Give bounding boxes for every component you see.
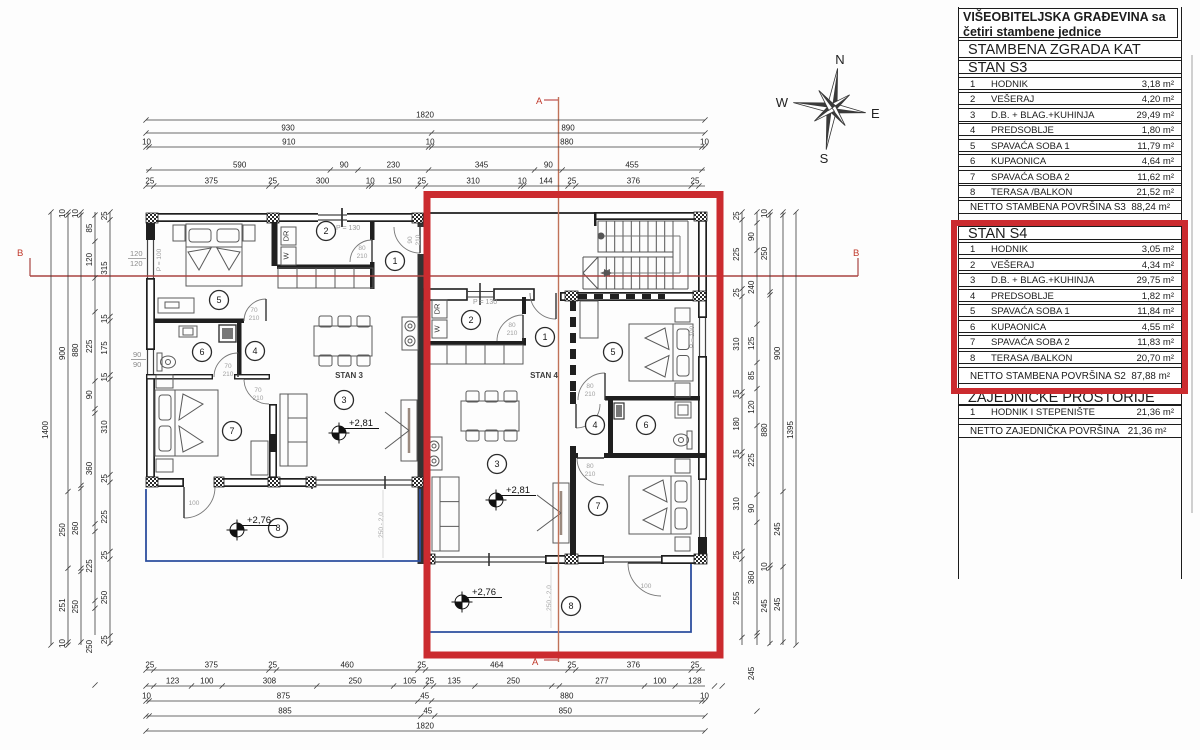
svg-text:25: 25 (145, 661, 154, 670)
svg-text:10: 10 (760, 562, 769, 571)
svg-text:B: B (17, 248, 23, 259)
svg-text:25: 25 (100, 550, 109, 559)
svg-text:15: 15 (732, 449, 741, 458)
svg-text:90: 90 (407, 236, 414, 244)
svg-text:W: W (282, 252, 291, 260)
svg-text:90: 90 (340, 161, 349, 170)
svg-text:5: 5 (216, 295, 221, 305)
svg-text:250: 250 (760, 246, 769, 260)
svg-text:25: 25 (268, 177, 277, 186)
svg-text:7: 7 (595, 501, 600, 511)
svg-text:45: 45 (423, 707, 432, 716)
svg-text:885: 885 (278, 707, 292, 716)
svg-text:210: 210 (223, 371, 234, 378)
svg-text:310: 310 (732, 497, 741, 511)
svg-text:135: 135 (448, 677, 462, 686)
svg-text:225: 225 (100, 510, 109, 524)
svg-text:80: 80 (586, 383, 594, 390)
svg-text:210: 210 (357, 253, 368, 260)
svg-text:277: 277 (595, 677, 609, 686)
svg-text:25: 25 (567, 177, 576, 186)
svg-text:245: 245 (773, 522, 782, 536)
svg-text:25: 25 (268, 661, 277, 670)
svg-text:S: S (820, 151, 829, 166)
svg-text:90: 90 (85, 390, 94, 399)
svg-text:90: 90 (544, 161, 553, 170)
svg-text:100: 100 (189, 500, 200, 507)
svg-text:120: 120 (85, 252, 94, 266)
svg-text:15: 15 (100, 314, 109, 323)
svg-text:175: 175 (100, 341, 109, 355)
svg-text:8: 8 (275, 523, 280, 533)
svg-text:+2,81: +2,81 (349, 418, 373, 429)
svg-text:10: 10 (366, 177, 375, 186)
svg-text:210: 210 (585, 391, 596, 398)
svg-text:225: 225 (85, 339, 94, 353)
svg-text:360: 360 (85, 461, 94, 475)
svg-text:120: 120 (130, 259, 143, 268)
svg-text:125: 125 (747, 336, 756, 350)
svg-text:15: 15 (732, 389, 741, 398)
svg-text:120: 120 (747, 400, 756, 414)
svg-text:+2,81: +2,81 (506, 485, 530, 496)
svg-text:85: 85 (85, 223, 94, 232)
svg-text:210: 210 (253, 395, 264, 402)
svg-text:210: 210 (249, 315, 260, 322)
svg-text:P = 130: P = 130 (473, 299, 497, 306)
svg-text:A: A (532, 657, 539, 668)
svg-text:1400: 1400 (41, 421, 50, 439)
svg-text:P = 100: P = 100 (689, 325, 696, 348)
svg-text:225: 225 (732, 247, 741, 261)
svg-text:123: 123 (166, 677, 180, 686)
svg-text:310: 310 (466, 177, 480, 186)
svg-text:100: 100 (653, 677, 667, 686)
svg-text:80: 80 (358, 245, 366, 252)
svg-text:A: A (536, 96, 543, 107)
svg-text:25: 25 (417, 661, 426, 670)
svg-text:590: 590 (233, 161, 247, 170)
svg-text:6: 6 (643, 420, 648, 430)
svg-text:376: 376 (627, 661, 641, 670)
svg-text:880: 880 (760, 423, 769, 437)
svg-text:225: 225 (747, 453, 756, 467)
svg-text:DR: DR (282, 230, 291, 241)
svg-text:DR: DR (433, 303, 442, 314)
svg-text:25: 25 (100, 473, 109, 482)
svg-text:7: 7 (229, 426, 234, 436)
svg-text:+2,76: +2,76 (472, 587, 496, 598)
svg-text:875: 875 (277, 692, 291, 701)
svg-text:25: 25 (691, 177, 700, 186)
svg-text:375: 375 (205, 177, 219, 186)
svg-text:80: 80 (586, 463, 594, 470)
svg-text:250 - 2,0: 250 - 2,0 (546, 585, 553, 611)
svg-text:128: 128 (688, 677, 702, 686)
svg-text:3: 3 (341, 395, 346, 405)
svg-text:245: 245 (747, 666, 756, 680)
svg-text:310: 310 (100, 420, 109, 434)
svg-text:10: 10 (700, 138, 709, 147)
svg-text:210: 210 (585, 471, 596, 478)
svg-text:10: 10 (426, 138, 435, 147)
svg-text:90: 90 (133, 360, 141, 369)
svg-text:1: 1 (392, 256, 397, 266)
svg-text:910: 910 (282, 138, 296, 147)
svg-text:210: 210 (415, 234, 422, 245)
svg-text:464: 464 (490, 661, 504, 670)
svg-text:308: 308 (263, 677, 277, 686)
svg-text:W: W (776, 95, 789, 110)
svg-text:N: N (835, 52, 844, 67)
svg-text:345: 345 (475, 161, 489, 170)
svg-text:240: 240 (747, 280, 756, 294)
svg-text:25: 25 (417, 177, 426, 186)
svg-text:880: 880 (71, 343, 80, 357)
svg-text:890: 890 (561, 124, 575, 133)
svg-text:10: 10 (760, 209, 769, 218)
svg-text:W: W (433, 325, 442, 333)
svg-text:376: 376 (627, 177, 641, 186)
svg-text:85: 85 (747, 371, 756, 380)
svg-text:250: 250 (71, 599, 80, 613)
svg-text:900: 900 (773, 346, 782, 360)
svg-text:70: 70 (250, 307, 258, 314)
svg-text:80: 80 (508, 322, 516, 329)
svg-text:4: 4 (252, 346, 257, 356)
svg-text:25: 25 (100, 211, 109, 220)
svg-text:245: 245 (760, 599, 769, 613)
svg-text:10: 10 (518, 177, 527, 186)
svg-text:260: 260 (71, 521, 80, 535)
svg-text:+2,76: +2,76 (247, 515, 271, 526)
svg-text:251: 251 (58, 598, 67, 612)
svg-text:100: 100 (200, 677, 214, 686)
svg-text:250: 250 (507, 677, 521, 686)
svg-text:STAN 4: STAN 4 (530, 371, 558, 380)
svg-text:3: 3 (494, 459, 499, 469)
svg-text:25: 25 (732, 288, 741, 297)
svg-text:455: 455 (625, 161, 639, 170)
svg-text:25: 25 (567, 661, 576, 670)
svg-text:25: 25 (425, 677, 434, 686)
svg-text:120: 120 (130, 249, 143, 258)
svg-text:180: 180 (732, 417, 741, 431)
svg-text:1820: 1820 (416, 111, 434, 120)
svg-text:930: 930 (281, 124, 295, 133)
svg-text:250: 250 (85, 639, 94, 653)
svg-text:1: 1 (542, 332, 547, 342)
svg-text:255: 255 (732, 591, 741, 605)
svg-text:245: 245 (773, 597, 782, 611)
svg-text:880: 880 (560, 138, 574, 147)
svg-text:4: 4 (592, 420, 597, 430)
svg-text:105: 105 (403, 677, 417, 686)
svg-text:90: 90 (747, 232, 756, 241)
svg-text:850: 850 (559, 707, 573, 716)
svg-text:E: E (871, 106, 880, 121)
svg-text:25: 25 (732, 211, 741, 220)
svg-text:360: 360 (747, 570, 756, 584)
svg-text:70: 70 (254, 387, 262, 394)
svg-text:150: 150 (388, 177, 402, 186)
svg-text:B: B (853, 248, 859, 259)
svg-text:225: 225 (85, 559, 94, 573)
svg-text:P = 100: P = 100 (156, 248, 163, 271)
svg-text:375: 375 (205, 661, 219, 670)
svg-text:900: 900 (58, 346, 67, 360)
svg-text:10: 10 (58, 209, 67, 218)
svg-text:90: 90 (747, 503, 756, 512)
svg-text:250: 250 (348, 677, 362, 686)
svg-text:10: 10 (142, 138, 151, 147)
svg-text:8: 8 (568, 601, 573, 611)
svg-text:10: 10 (700, 692, 709, 701)
svg-text:300: 300 (316, 177, 330, 186)
svg-text:250 - 2,0: 250 - 2,0 (378, 512, 385, 538)
svg-text:310: 310 (732, 337, 741, 351)
svg-text:45: 45 (420, 692, 429, 701)
svg-text:460: 460 (340, 661, 354, 670)
svg-text:210: 210 (507, 330, 518, 337)
svg-text:250: 250 (58, 523, 67, 537)
svg-text:2: 2 (323, 226, 328, 236)
svg-text:5: 5 (610, 347, 615, 357)
svg-text:144: 144 (539, 177, 553, 186)
svg-text:6: 6 (199, 347, 204, 357)
svg-text:STAN 3: STAN 3 (335, 371, 363, 380)
svg-text:P = 130: P = 130 (336, 225, 360, 232)
svg-text:25: 25 (691, 661, 700, 670)
svg-text:10: 10 (58, 639, 67, 648)
svg-text:25: 25 (732, 550, 741, 559)
svg-text:70: 70 (224, 363, 232, 370)
svg-text:1395: 1395 (786, 421, 795, 439)
svg-text:250: 250 (100, 590, 109, 604)
svg-text:315: 315 (100, 261, 109, 275)
svg-text:15: 15 (100, 372, 109, 381)
svg-text:100: 100 (641, 583, 652, 590)
svg-text:10: 10 (71, 209, 80, 218)
svg-text:1820: 1820 (416, 722, 434, 731)
svg-text:10: 10 (142, 692, 151, 701)
svg-text:230: 230 (387, 161, 401, 170)
svg-text:880: 880 (560, 692, 574, 701)
svg-text:25: 25 (100, 635, 109, 644)
svg-text:2: 2 (468, 315, 473, 325)
svg-text:25: 25 (145, 177, 154, 186)
svg-text:90: 90 (133, 350, 141, 359)
